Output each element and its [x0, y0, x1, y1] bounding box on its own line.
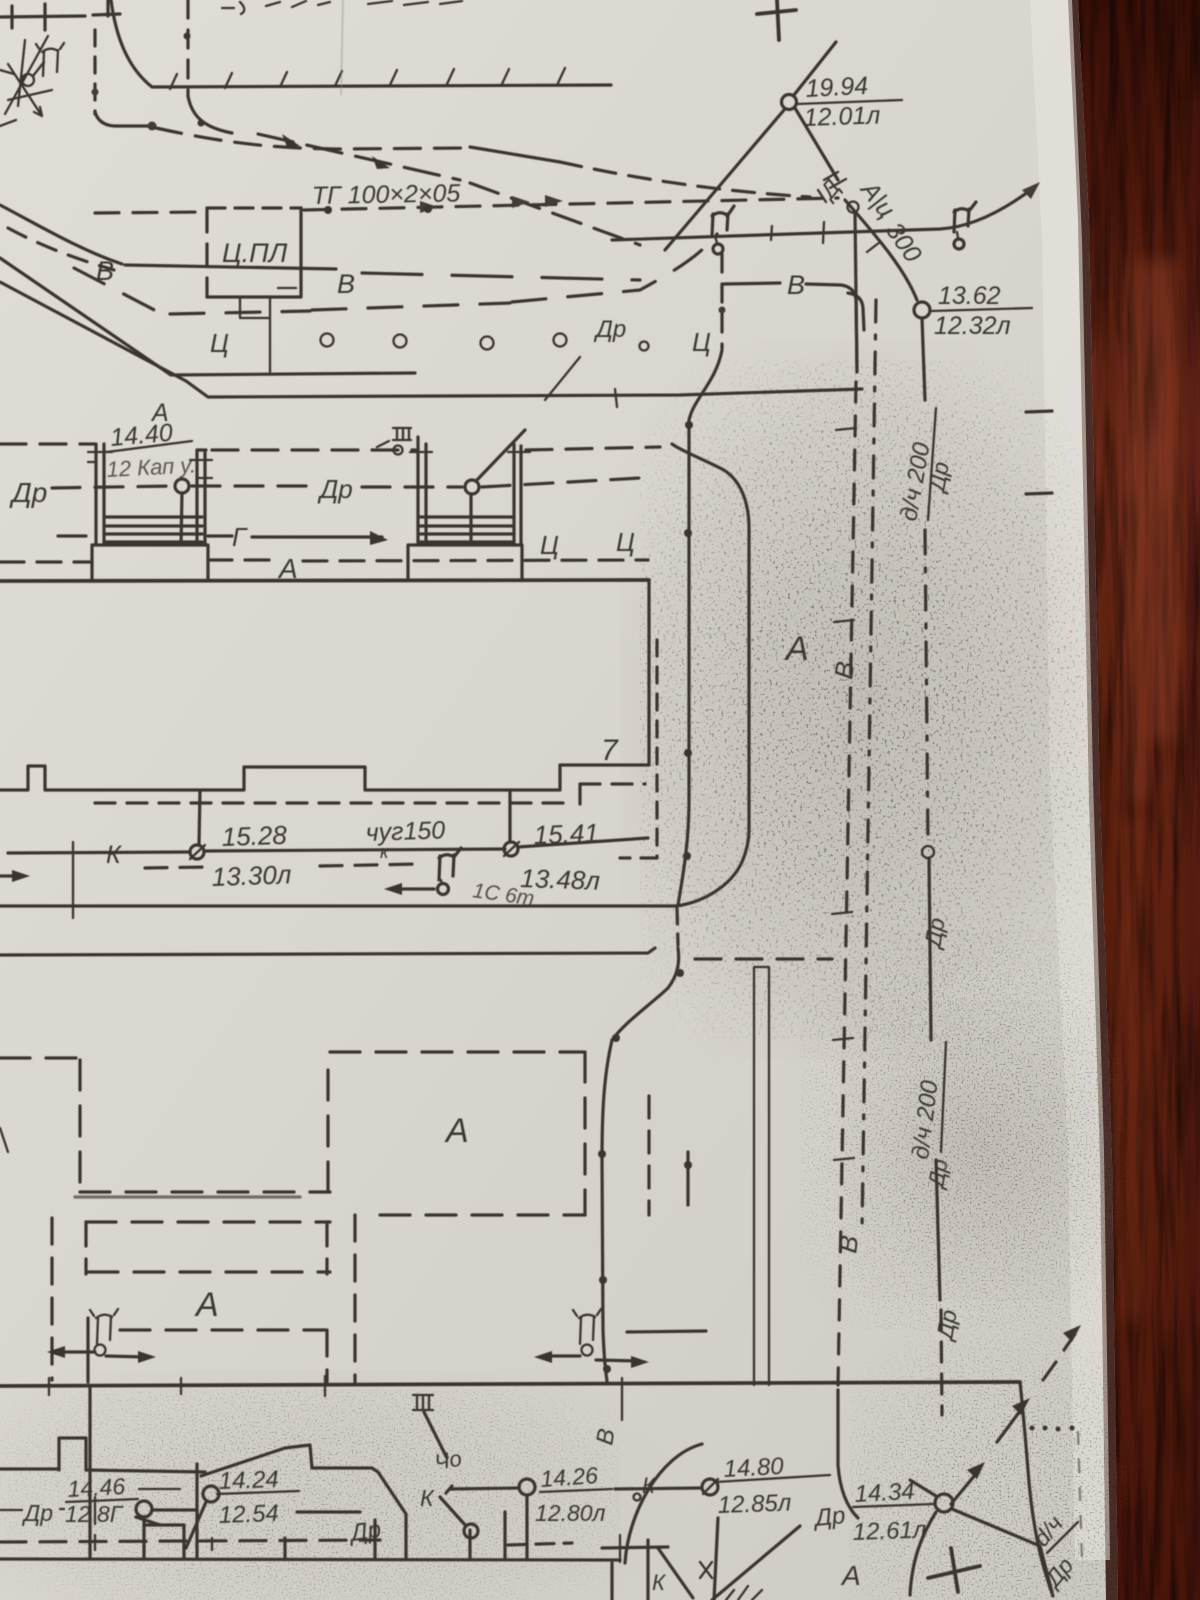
svg-text:14.46: 14.46 [67, 1473, 126, 1502]
svg-text:А: А [194, 1286, 219, 1324]
svg-text:Др: Др [593, 316, 626, 343]
svg-text:Ц: Ц [692, 327, 711, 357]
svg-text:Г: Г [232, 522, 248, 552]
svg-text:Ц: Ц [210, 328, 229, 358]
svg-text:12.01л: 12.01л [803, 101, 881, 132]
svg-text:Чо: Чо [433, 1446, 464, 1475]
svg-text:К: К [652, 1570, 666, 1595]
svg-text:А: А [784, 630, 809, 668]
svg-text:К: К [420, 1485, 435, 1511]
svg-text:Др: Др [346, 1516, 383, 1547]
svg-text:Ц: Ц [540, 530, 559, 560]
svg-text:15.28: 15.28 [221, 820, 288, 852]
svg-text:К: К [106, 841, 122, 869]
svg-text:Др: Др [21, 1500, 53, 1526]
svg-text:12.80л: 12.80л [535, 1500, 606, 1526]
svg-text:15.41: 15.41 [533, 818, 599, 850]
svg-text:12.54: 12.54 [218, 1500, 279, 1529]
svg-text:12.61л: 12.61л [852, 1516, 927, 1546]
svg-text:Ц: Ц [616, 527, 635, 557]
svg-text:Др: Др [317, 474, 353, 504]
svg-text:12.32л: 12.32л [934, 312, 1011, 340]
svg-text:Др: Др [9, 477, 47, 508]
svg-text:А: А [840, 1560, 861, 1591]
svg-text:Ц.ПЛ: Ц.ПЛ [222, 238, 288, 268]
svg-text:12.85л: 12.85л [717, 1489, 792, 1519]
svg-text:В: В [337, 269, 355, 299]
svg-text:19.94: 19.94 [805, 72, 869, 103]
svg-text:14.26: 14.26 [540, 1462, 599, 1492]
svg-text:Др: Др [811, 1502, 847, 1532]
svg-text:А: А [444, 1112, 469, 1150]
svg-text:13.30л: 13.30л [211, 859, 292, 892]
svg-text:14.24: 14.24 [218, 1466, 279, 1495]
svg-text:В: В [787, 270, 805, 300]
svg-text:К: К [642, 1473, 656, 1498]
svg-text:14.34: 14.34 [854, 1478, 915, 1508]
svg-text:13.62: 13.62 [938, 282, 1001, 310]
svg-text:чуг150: чуг150 [365, 816, 446, 847]
svg-text:ТГ 100×2×05: ТГ 100×2×05 [312, 179, 461, 210]
svg-text:7: 7 [601, 734, 619, 767]
